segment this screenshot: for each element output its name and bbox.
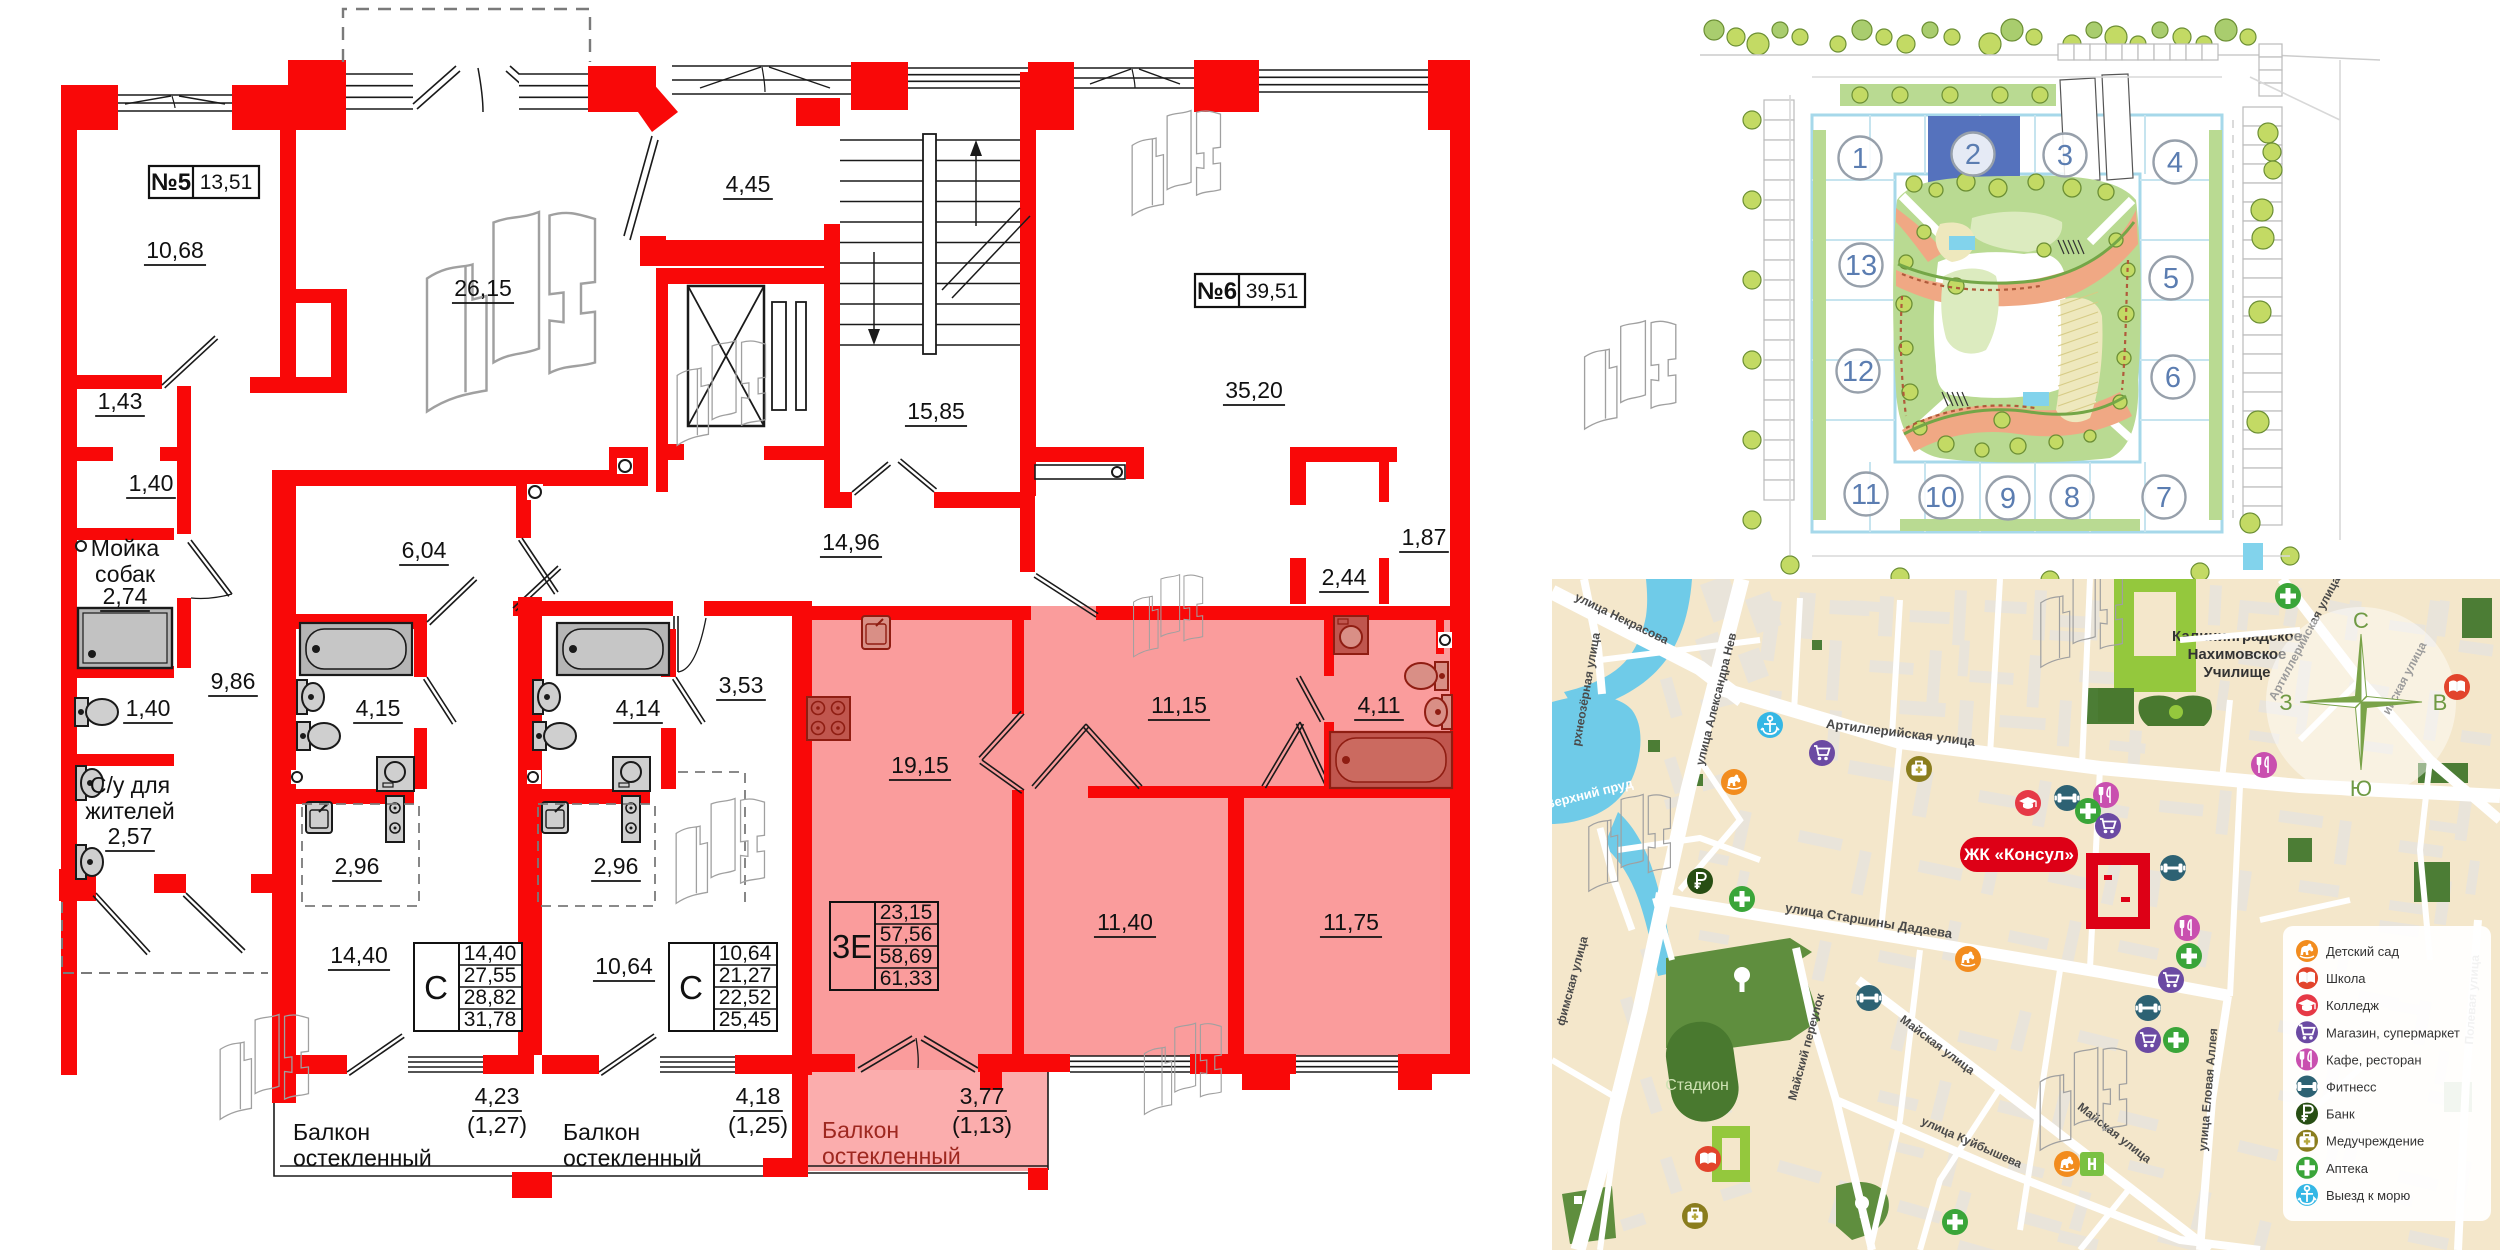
svg-text:С/у для: С/у для: [90, 772, 170, 798]
svg-text:3,53: 3,53: [719, 672, 764, 698]
svg-text:Колледж: Колледж: [2326, 998, 2379, 1013]
svg-text:(1,27): (1,27): [467, 1112, 527, 1138]
svg-text:1,40: 1,40: [126, 695, 171, 721]
svg-text:1,43: 1,43: [98, 388, 143, 414]
svg-text:№6: №6: [1197, 278, 1237, 305]
svg-text:4,15: 4,15: [356, 695, 401, 721]
svg-text:22,52: 22,52: [719, 986, 772, 1009]
svg-text:Школа: Школа: [2326, 971, 2366, 986]
svg-text:С: С: [2353, 608, 2369, 633]
svg-text:14,40: 14,40: [464, 942, 517, 965]
svg-text:11,75: 11,75: [1323, 909, 1379, 935]
svg-text:8: 8: [2064, 482, 2080, 514]
svg-text:остекленный: остекленный: [822, 1143, 961, 1169]
svg-text:4,45: 4,45: [726, 171, 771, 197]
svg-text:(1,13): (1,13): [952, 1112, 1012, 1138]
svg-text:жителей: жителей: [85, 798, 175, 824]
svg-text:26,15: 26,15: [454, 275, 512, 301]
svg-text:23,15: 23,15: [880, 901, 933, 924]
svg-text:Банк: Банк: [2326, 1107, 2355, 1122]
svg-text:13: 13: [1845, 250, 1877, 282]
svg-text:4,23: 4,23: [475, 1083, 520, 1109]
svg-text:Ю: Ю: [2350, 776, 2372, 801]
svg-text:Балкон: Балкон: [293, 1119, 370, 1145]
svg-text:11,15: 11,15: [1151, 692, 1207, 718]
svg-text:57,56: 57,56: [880, 923, 933, 946]
svg-text:14,40: 14,40: [330, 942, 388, 968]
svg-text:2,74: 2,74: [103, 583, 148, 609]
svg-text:2,57: 2,57: [108, 823, 153, 849]
svg-text:25,45: 25,45: [719, 1008, 772, 1031]
svg-text:3: 3: [2057, 140, 2073, 172]
svg-text:3,77: 3,77: [960, 1083, 1005, 1109]
svg-text:Стадион: Стадион: [1665, 1077, 1729, 1094]
svg-text:14,96: 14,96: [822, 529, 880, 555]
svg-text:4,11: 4,11: [1357, 692, 1400, 718]
svg-text:5: 5: [2163, 263, 2179, 295]
svg-text:10,64: 10,64: [719, 942, 772, 965]
svg-text:1: 1: [1852, 143, 1868, 175]
svg-text:4,18: 4,18: [736, 1083, 781, 1109]
svg-text:1,87: 1,87: [1402, 524, 1447, 550]
svg-text:Детский сад: Детский сад: [2326, 944, 2399, 959]
svg-text:В: В: [2433, 690, 2448, 715]
svg-text:13,51: 13,51: [200, 171, 253, 194]
svg-text:12: 12: [1842, 356, 1874, 388]
svg-text:39,51: 39,51: [1246, 280, 1299, 303]
svg-text:2,96: 2,96: [594, 853, 639, 879]
svg-text:Училище: Училище: [2203, 664, 2270, 681]
svg-text:27,55: 27,55: [464, 964, 517, 987]
svg-text:4: 4: [2167, 147, 2183, 179]
svg-text:9,86: 9,86: [211, 668, 256, 694]
svg-text:31,78: 31,78: [464, 1008, 517, 1031]
svg-text:2: 2: [1965, 139, 1981, 171]
svg-text:35,20: 35,20: [1225, 377, 1283, 403]
svg-text:№5: №5: [151, 169, 191, 196]
svg-text:Балкон: Балкон: [822, 1117, 899, 1143]
svg-text:10,64: 10,64: [595, 953, 653, 979]
svg-text:9: 9: [2000, 483, 2016, 515]
svg-text:19,15: 19,15: [891, 752, 949, 778]
svg-text:1,40: 1,40: [129, 470, 174, 496]
svg-text:2,96: 2,96: [335, 853, 380, 879]
svg-text:Медучреждение: Медучреждение: [2326, 1134, 2424, 1149]
svg-text:З: З: [2279, 690, 2292, 715]
svg-text:15,85: 15,85: [907, 398, 965, 424]
svg-text:Балкон: Балкон: [563, 1119, 640, 1145]
svg-text:(1,25): (1,25): [728, 1112, 788, 1138]
svg-text:3Е: 3Е: [832, 928, 872, 965]
svg-text:28,82: 28,82: [464, 986, 517, 1009]
svg-text:Магазин, супермаркет: Магазин, супермаркет: [2326, 1025, 2460, 1040]
svg-text:7: 7: [2156, 482, 2172, 514]
svg-text:Мойка: Мойка: [91, 535, 160, 561]
svg-text:Кафе, ресторан: Кафе, ресторан: [2326, 1052, 2422, 1067]
svg-text:Выезд к морю: Выезд к морю: [2326, 1188, 2411, 1203]
svg-text:остекленный: остекленный: [293, 1145, 432, 1171]
svg-text:11,40: 11,40: [1097, 909, 1153, 935]
svg-text:Фитнесс: Фитнесс: [2326, 1080, 2377, 1095]
svg-text:Аптека: Аптека: [2326, 1161, 2369, 1176]
svg-text:10,68: 10,68: [146, 237, 204, 263]
svg-text:11: 11: [1851, 479, 1881, 511]
svg-text:остекленный: остекленный: [563, 1145, 702, 1171]
svg-text:58,69: 58,69: [880, 945, 933, 968]
svg-text:61,33: 61,33: [880, 967, 933, 990]
svg-text:6: 6: [2165, 362, 2181, 394]
svg-text:ЖК «Консул»: ЖК «Консул»: [1963, 845, 2074, 864]
svg-text:4,14: 4,14: [616, 695, 661, 721]
svg-text:С: С: [424, 969, 448, 1006]
svg-text:Нахимовское: Нахимовское: [2188, 646, 2287, 663]
svg-text:21,27: 21,27: [719, 964, 772, 987]
svg-text:С: С: [679, 969, 703, 1006]
svg-text:6,04: 6,04: [402, 537, 447, 563]
svg-text:2,44: 2,44: [1322, 564, 1367, 590]
svg-text:10: 10: [1925, 482, 1957, 514]
